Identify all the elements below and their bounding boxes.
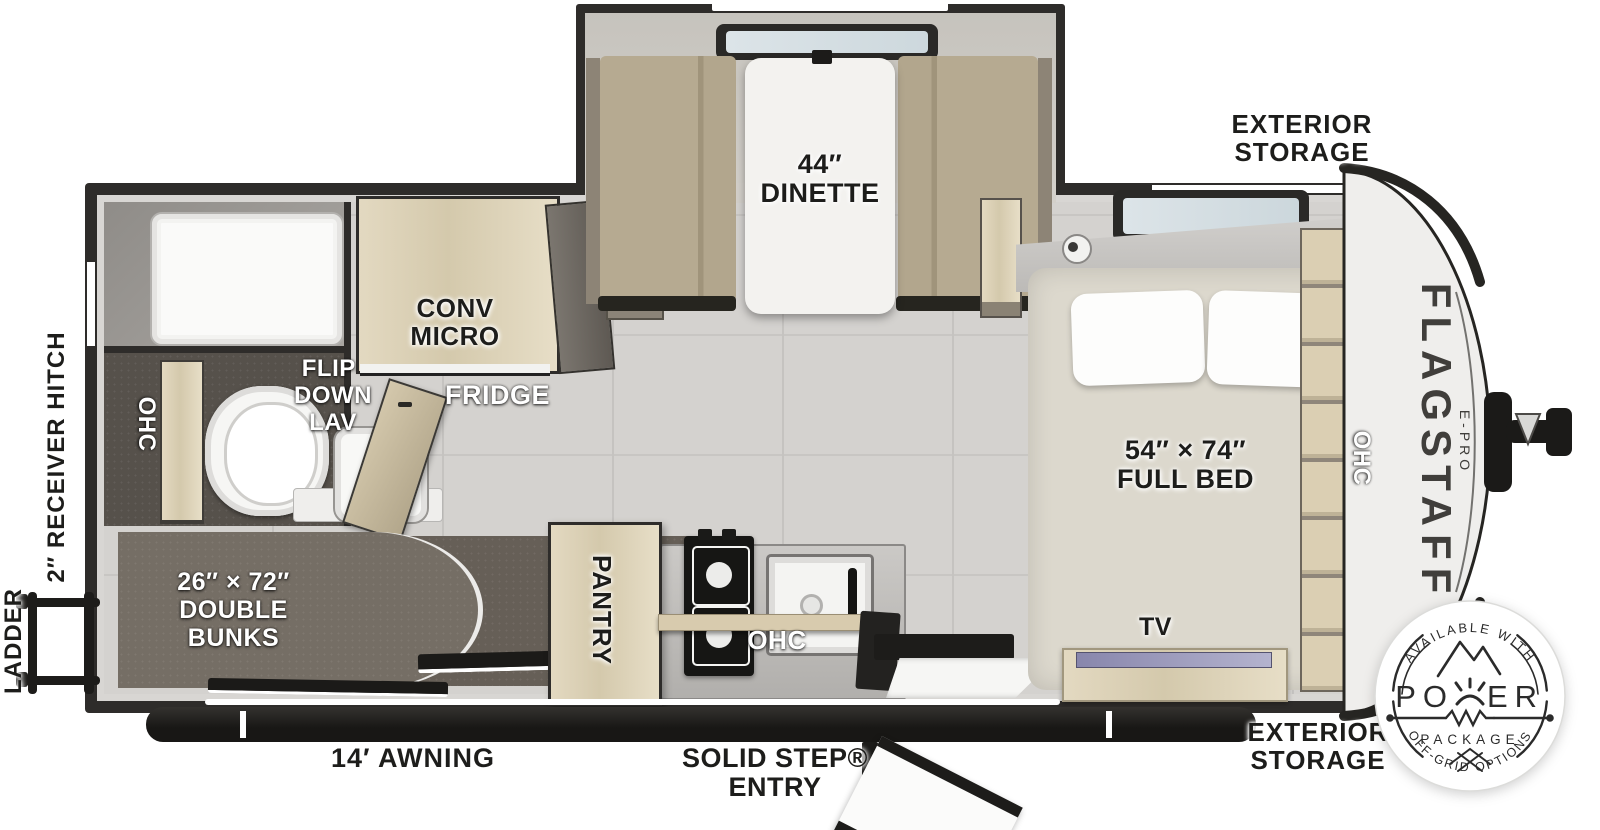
- bathroom-divider-wall: [104, 346, 348, 353]
- bedroom-ohc-label: OHC: [1343, 408, 1379, 508]
- brand-name: FLAGSTAFF: [1413, 283, 1460, 602]
- badge-power-left: PO: [1395, 679, 1454, 714]
- bedroom-wardrobe: [980, 198, 1022, 318]
- brand-sub: E-PRO: [1457, 410, 1473, 474]
- awning-label: 14′ AWNING: [298, 744, 528, 773]
- bedroom-ohc-text: OHC: [1348, 431, 1375, 486]
- table-window-bracket: [812, 50, 832, 64]
- bunks-line2: DOUBLE: [136, 596, 331, 624]
- shower-wall-window: [87, 262, 95, 346]
- ladder-text: LADDER: [1, 588, 27, 694]
- stove-burner-front-ring: [706, 562, 732, 588]
- storage-top-line2: STORAGE: [1212, 138, 1392, 166]
- awning-roll: [146, 707, 1256, 742]
- ladder-rung-top: [22, 598, 100, 607]
- power-package-badge: AVAILABLE WITH PO ER PACKAGE OFF-GRID OP…: [1374, 600, 1566, 792]
- double-bunks-label: 26″ × 72″ DOUBLE BUNKS: [136, 568, 331, 652]
- receiver-hitch-label: 2″ RECEIVER HITCH: [39, 327, 75, 587]
- stove-knob-left: [698, 529, 712, 540]
- flip-down-lav-line2: DOWN: [258, 383, 408, 410]
- fridge-label: FRIDGE: [425, 380, 570, 410]
- bath-ohc-label: OHC: [128, 374, 164, 474]
- conv-micro-label: CONV MICRO: [372, 294, 538, 350]
- dinette-bench-left-side: [586, 58, 600, 304]
- tv-label: TV: [1118, 614, 1193, 641]
- full-bed-line2: FULL BED: [1078, 465, 1293, 494]
- headboard-knob-dot: [1068, 242, 1078, 252]
- floorplan-canvas: OHC FLIP- DOWN LAV CONV MICRO FRIDGE 44″…: [0, 0, 1600, 830]
- exterior-storage-top-label: EXTERIOR STORAGE: [1212, 110, 1392, 166]
- awning-rail-highlight: [205, 699, 1060, 705]
- shower-pan: [150, 212, 344, 346]
- badge-package: PACKAGE: [1420, 732, 1519, 747]
- dinette-label: 44″ DINETTE: [745, 150, 895, 208]
- ladder-label: LADDER: [0, 576, 32, 706]
- awning-bracket-left: [240, 711, 246, 738]
- dinette-bench-left-cap: [598, 296, 736, 311]
- flip-down-lav-line3: LAV: [258, 410, 408, 437]
- dinette-line2: DINETTE: [745, 179, 895, 208]
- stove-knob-right: [722, 529, 736, 540]
- pantry-text: PANTRY: [588, 555, 616, 665]
- entry-line2: ENTRY: [660, 773, 890, 802]
- bath-ohc-text: OHC: [133, 397, 160, 452]
- conv-micro-shelf: [360, 364, 550, 376]
- kitchen-ohc-text: OHC: [747, 625, 806, 655]
- kitchen-ohc-label: OHC: [722, 626, 832, 655]
- bunks-line1: 26″ × 72″: [136, 568, 331, 596]
- conv-micro-line1: CONV: [372, 294, 538, 322]
- bunks-line3: BUNKS: [136, 624, 331, 652]
- slideout-roof-window: [712, 2, 948, 11]
- storage-top-line1: EXTERIOR: [1212, 110, 1392, 138]
- full-bed-label: 54″ × 74″ FULL BED: [1078, 436, 1293, 494]
- awning-bracket-right: [1106, 711, 1112, 738]
- bathroom-cabinet: [160, 360, 204, 524]
- entry-line1: SOLID STEP®: [660, 744, 890, 773]
- receiver-hitch-text: 2″ RECEIVER HITCH: [44, 331, 70, 582]
- full-bed-line1: 54″ × 74″: [1078, 436, 1293, 465]
- tv-text: TV: [1139, 613, 1172, 641]
- tv-screen: [1076, 652, 1272, 668]
- dinette-bench-left: [600, 56, 736, 302]
- dinette-line1: 44″: [745, 150, 895, 179]
- ladder-rung-bottom: [22, 676, 100, 685]
- tongue-hitch: [1484, 392, 1572, 492]
- conv-micro-line2: MICRO: [372, 322, 538, 350]
- fridge-text: FRIDGE: [445, 380, 550, 410]
- entry-step-frame: [874, 634, 1014, 660]
- entry-label: SOLID STEP® ENTRY: [660, 744, 890, 802]
- pantry-label: PANTRY: [584, 520, 620, 700]
- awning-text: 14′ AWNING: [331, 743, 495, 773]
- badge-power-right: ER: [1487, 679, 1544, 714]
- bed-pillow-left: [1070, 290, 1205, 387]
